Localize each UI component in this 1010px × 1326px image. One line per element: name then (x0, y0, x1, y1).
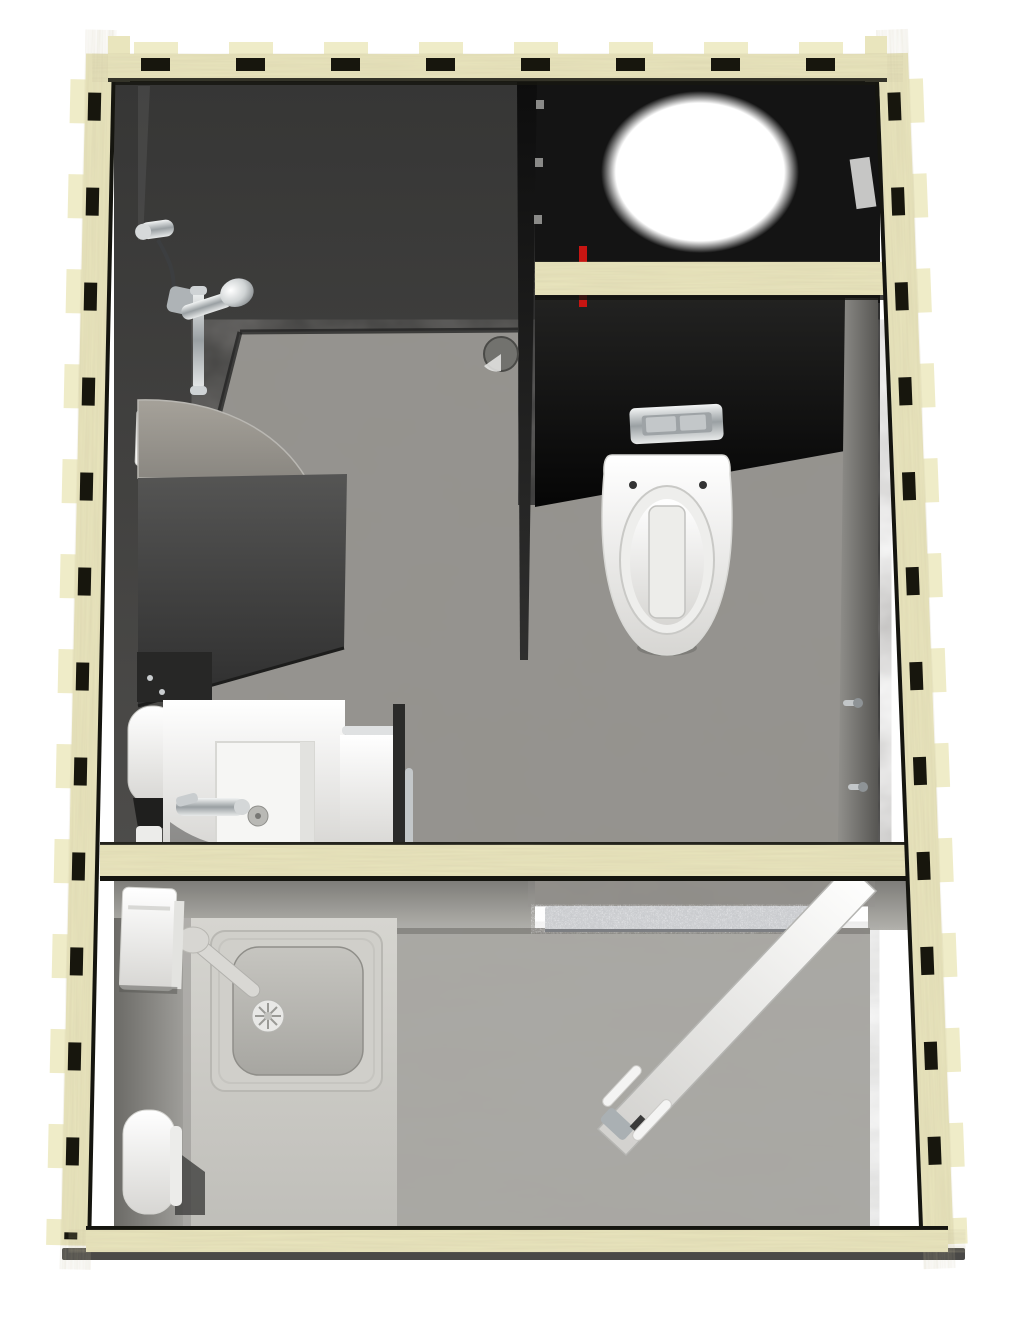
dividing-beam (100, 842, 908, 881)
bottom-wall-frame (86, 1226, 948, 1252)
electric-panel-box (119, 887, 185, 994)
floor-drain (484, 337, 518, 372)
rail-cap-top (190, 286, 207, 295)
service-beam (535, 262, 885, 300)
utility-rear-wall-face-right (868, 878, 908, 930)
right-wall-frame (874, 52, 968, 1245)
washbasin (163, 700, 345, 852)
ceiling-opening (601, 91, 799, 253)
basin-opening (216, 742, 314, 848)
toilet-bolt-left (629, 481, 637, 489)
door-step-texture (545, 906, 817, 932)
toilet-flush-column (649, 506, 685, 618)
bathroom-room (112, 78, 885, 852)
towel-rail-top (342, 726, 400, 735)
mirror-screw-2 (159, 689, 165, 695)
left-wall-frame (46, 53, 116, 1246)
rail-cap-bottom (190, 386, 207, 395)
shelf-side-panel (393, 704, 405, 850)
sink-drain (252, 1000, 284, 1032)
top-wall-frame (108, 36, 887, 82)
step-edge (545, 929, 817, 932)
flush-plate (629, 404, 724, 445)
towel-rail (405, 768, 413, 852)
toilet-bolt-right (699, 481, 707, 489)
storage-shelf (340, 704, 413, 852)
floorplan-render (0, 0, 1010, 1326)
red-supply-pipe-upper (579, 246, 587, 262)
mirror-screw-1 (147, 675, 153, 681)
rendered-scene (0, 0, 1010, 1326)
top-wall-tabs (108, 42, 887, 55)
wc-right-wall-face (838, 298, 878, 847)
top-wall-notches (108, 58, 887, 71)
utility-room (114, 865, 908, 1232)
floor-edge-line-1 (240, 330, 518, 332)
